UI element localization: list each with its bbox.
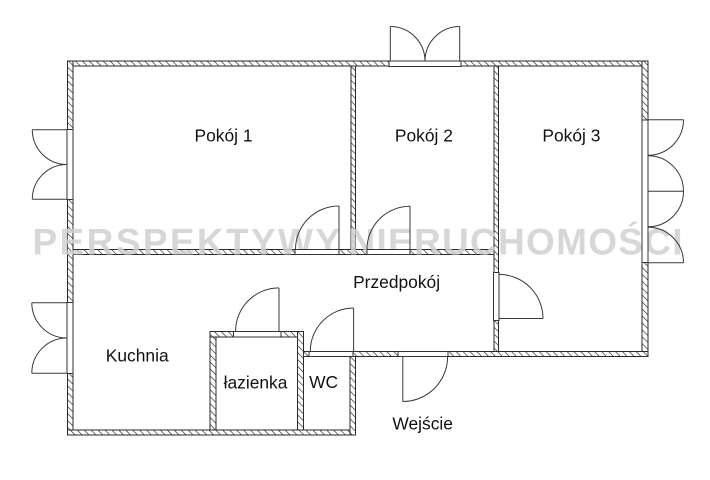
svg-text:PERSPEKTYWY: PERSPEKTYWY	[33, 221, 341, 262]
svg-text:Pokój 2: Pokój 2	[395, 126, 453, 146]
svg-text:Wejście: Wejście	[392, 414, 453, 434]
svg-text:Pokój 3: Pokój 3	[542, 126, 600, 146]
svg-text:łazienka: łazienka	[224, 373, 288, 393]
svg-text:Przedpokój: Przedpokój	[353, 272, 440, 292]
svg-text:WC: WC	[309, 372, 338, 392]
svg-text:Pokój 1: Pokój 1	[194, 126, 252, 146]
svg-text:NIERUCHOMOŚCI: NIERUCHOMOŚCI	[349, 220, 683, 262]
svg-text:Kuchnia: Kuchnia	[106, 346, 169, 366]
